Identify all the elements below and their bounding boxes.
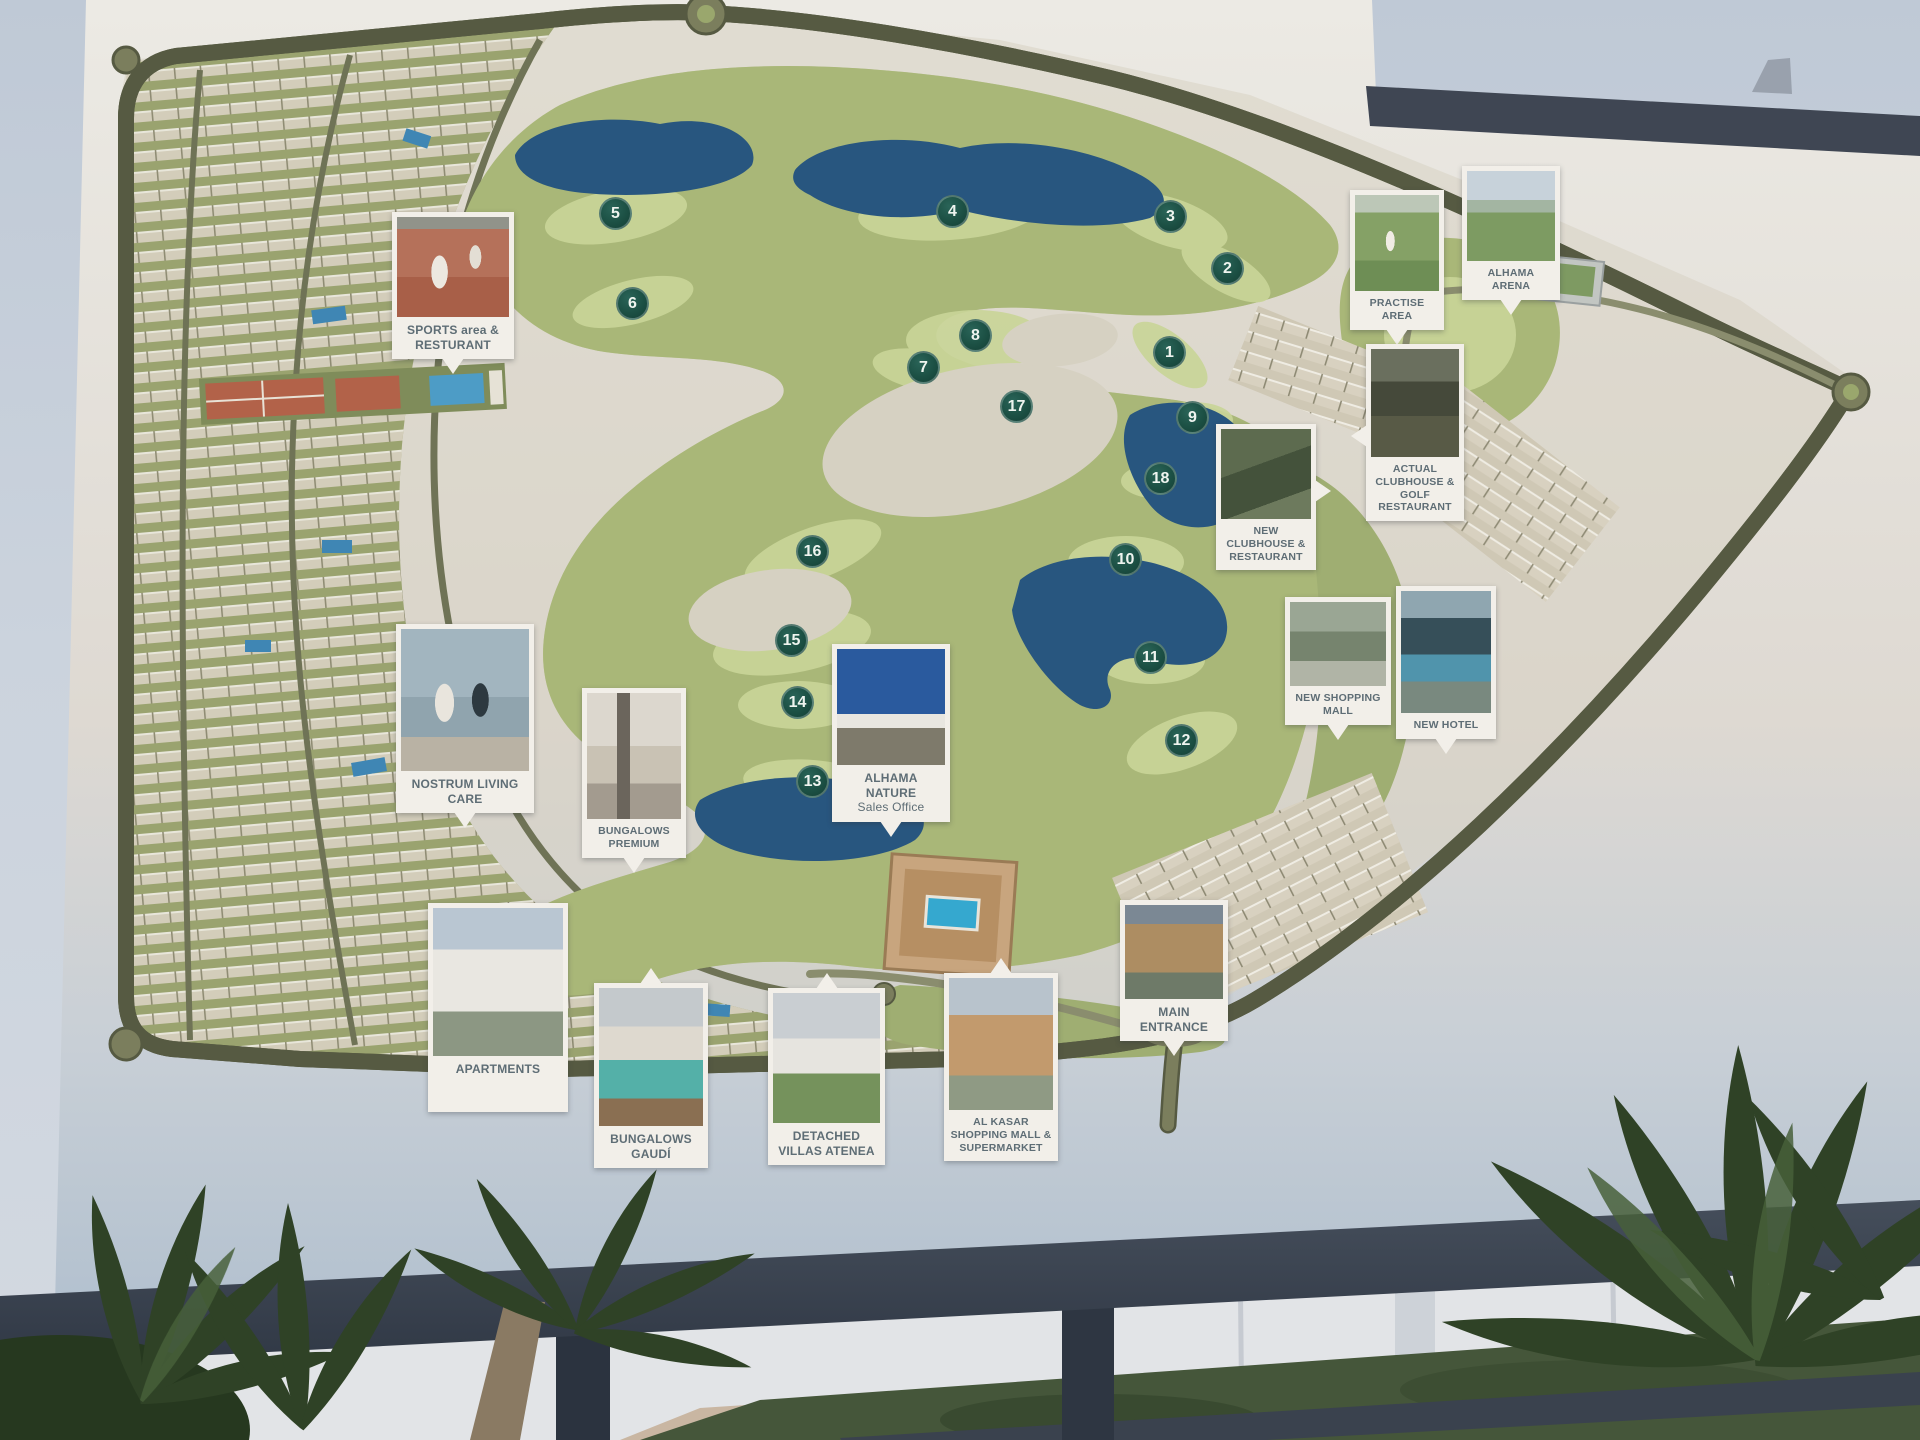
pointer-tail [1327, 724, 1349, 740]
nostrum-caption: NOSTRUM LIVING CARE [401, 771, 529, 811]
golf-hole-badge-7: 7 [907, 351, 940, 384]
al-kasar-photo [949, 978, 1053, 1110]
new-hotel-caption: NEW HOTEL [1401, 713, 1491, 737]
golf-hole-badge-4: 4 [936, 195, 969, 228]
bungalows-gaudi-caption: BUNGALOWS GAUDÍ [599, 1126, 703, 1166]
pointer-tail [454, 812, 476, 828]
alhama-arena-photo [1467, 171, 1555, 261]
label-card-sports: SPORTS area & RESTURANT [392, 212, 514, 359]
villas-atenea-photo [773, 993, 880, 1123]
pointer-tail [1315, 480, 1331, 502]
main-entrance-caption: MAIN ENTRANCE [1125, 999, 1223, 1039]
golf-hole-badge-10: 10 [1109, 543, 1142, 576]
pointer-tail [623, 857, 645, 873]
golf-hole-badge-13: 13 [796, 765, 829, 798]
golf-hole-badge-6: 6 [616, 287, 649, 320]
golf-hole-badge-9: 9 [1176, 401, 1209, 434]
label-card-new-hotel: NEW HOTEL [1396, 586, 1496, 739]
al-kasar-caption: AL KASAR SHOPPING MALL & SUPERMARKET [949, 1110, 1053, 1159]
label-card-villas-atenea: DETACHED VILLAS ATENEA [768, 988, 885, 1165]
sports-caption: SPORTS area & RESTURANT [397, 317, 509, 357]
apartments-photo [433, 908, 563, 1056]
new-shopping-mall-photo [1290, 602, 1386, 686]
golf-hole-badge-5: 5 [599, 197, 632, 230]
actual-clubhouse-caption: ACTUAL CLUBHOUSE & GOLF RESTAURANT [1371, 457, 1459, 519]
golf-hole-badge-17: 17 [1000, 390, 1033, 423]
label-card-bungalows-gaudi: BUNGALOWS GAUDÍ [594, 983, 708, 1168]
billboard-photo-scene: 1 2 3 4 5 6 7 8 9 10 11 12 13 14 15 16 1… [0, 0, 1920, 1440]
label-card-new-shopping-mall: NEW SHOPPING MALL [1285, 597, 1391, 725]
pointer-tail [640, 968, 662, 984]
golf-hole-badge-16: 16 [796, 535, 829, 568]
golf-hole-badge-1: 1 [1153, 336, 1186, 369]
pointer-tail [1386, 329, 1408, 345]
bungalows-gaudi-photo [599, 988, 703, 1126]
golf-hole-badge-3: 3 [1154, 200, 1187, 233]
sales-office-caption-line1: ALHAMA NATURE [837, 765, 945, 800]
pointer-tail [1435, 738, 1457, 754]
new-hotel-photo [1401, 591, 1491, 713]
new-clubhouse-caption: NEW CLUBHOUSE & RESTAURANT [1221, 519, 1311, 568]
nostrum-photo [401, 629, 529, 771]
pointer-tail [1163, 1040, 1185, 1056]
pointer-tail [1351, 425, 1367, 447]
label-card-sales-office: ALHAMA NATURE Sales Office [832, 644, 950, 822]
sports-photo [397, 217, 509, 317]
practise-area-photo [1355, 195, 1439, 291]
label-card-main-entrance: MAIN ENTRANCE [1120, 900, 1228, 1041]
golf-hole-badge-15: 15 [775, 624, 808, 657]
villas-atenea-caption: DETACHED VILLAS ATENEA [773, 1123, 880, 1163]
label-card-practise-area: PRACTISE AREA [1350, 190, 1444, 330]
label-card-bungalows-premium: BUNGALOWS PREMIUM [582, 688, 686, 858]
label-card-apartments: APARTMENTS [428, 903, 568, 1112]
label-card-al-kasar: AL KASAR SHOPPING MALL & SUPERMARKET [944, 973, 1058, 1161]
label-card-new-clubhouse: NEW CLUBHOUSE & RESTAURANT [1216, 424, 1316, 570]
golf-hole-badge-8: 8 [959, 319, 992, 352]
sales-office-photo [837, 649, 945, 765]
bungalows-premium-caption: BUNGALOWS PREMIUM [587, 819, 681, 856]
alhama-arena-caption: ALHAMA ARENA [1467, 261, 1555, 298]
map-annotations: 1 2 3 4 5 6 7 8 9 10 11 12 13 14 15 16 1… [0, 0, 1920, 1440]
pointer-tail [442, 358, 464, 374]
pointer-tail [1500, 299, 1522, 315]
pointer-tail [990, 958, 1012, 974]
pointer-tail [880, 821, 902, 837]
practise-area-caption: PRACTISE AREA [1355, 291, 1439, 328]
golf-hole-badge-2: 2 [1211, 252, 1244, 285]
bungalows-premium-photo [587, 693, 681, 819]
label-card-actual-clubhouse: ACTUAL CLUBHOUSE & GOLF RESTAURANT [1366, 344, 1464, 521]
sales-office-caption-line2: Sales Office [837, 800, 945, 820]
label-card-nostrum: NOSTRUM LIVING CARE [396, 624, 534, 813]
golf-hole-badge-11: 11 [1134, 641, 1167, 674]
golf-hole-badge-14: 14 [781, 686, 814, 719]
new-clubhouse-photo [1221, 429, 1311, 519]
main-entrance-photo [1125, 905, 1223, 999]
apartments-caption: APARTMENTS [433, 1056, 563, 1082]
golf-hole-badge-12: 12 [1165, 724, 1198, 757]
golf-hole-badge-18: 18 [1144, 462, 1177, 495]
new-shopping-mall-caption: NEW SHOPPING MALL [1290, 686, 1386, 723]
actual-clubhouse-photo [1371, 349, 1459, 457]
pointer-tail [816, 973, 838, 989]
label-card-alhama-arena: ALHAMA ARENA [1462, 166, 1560, 300]
